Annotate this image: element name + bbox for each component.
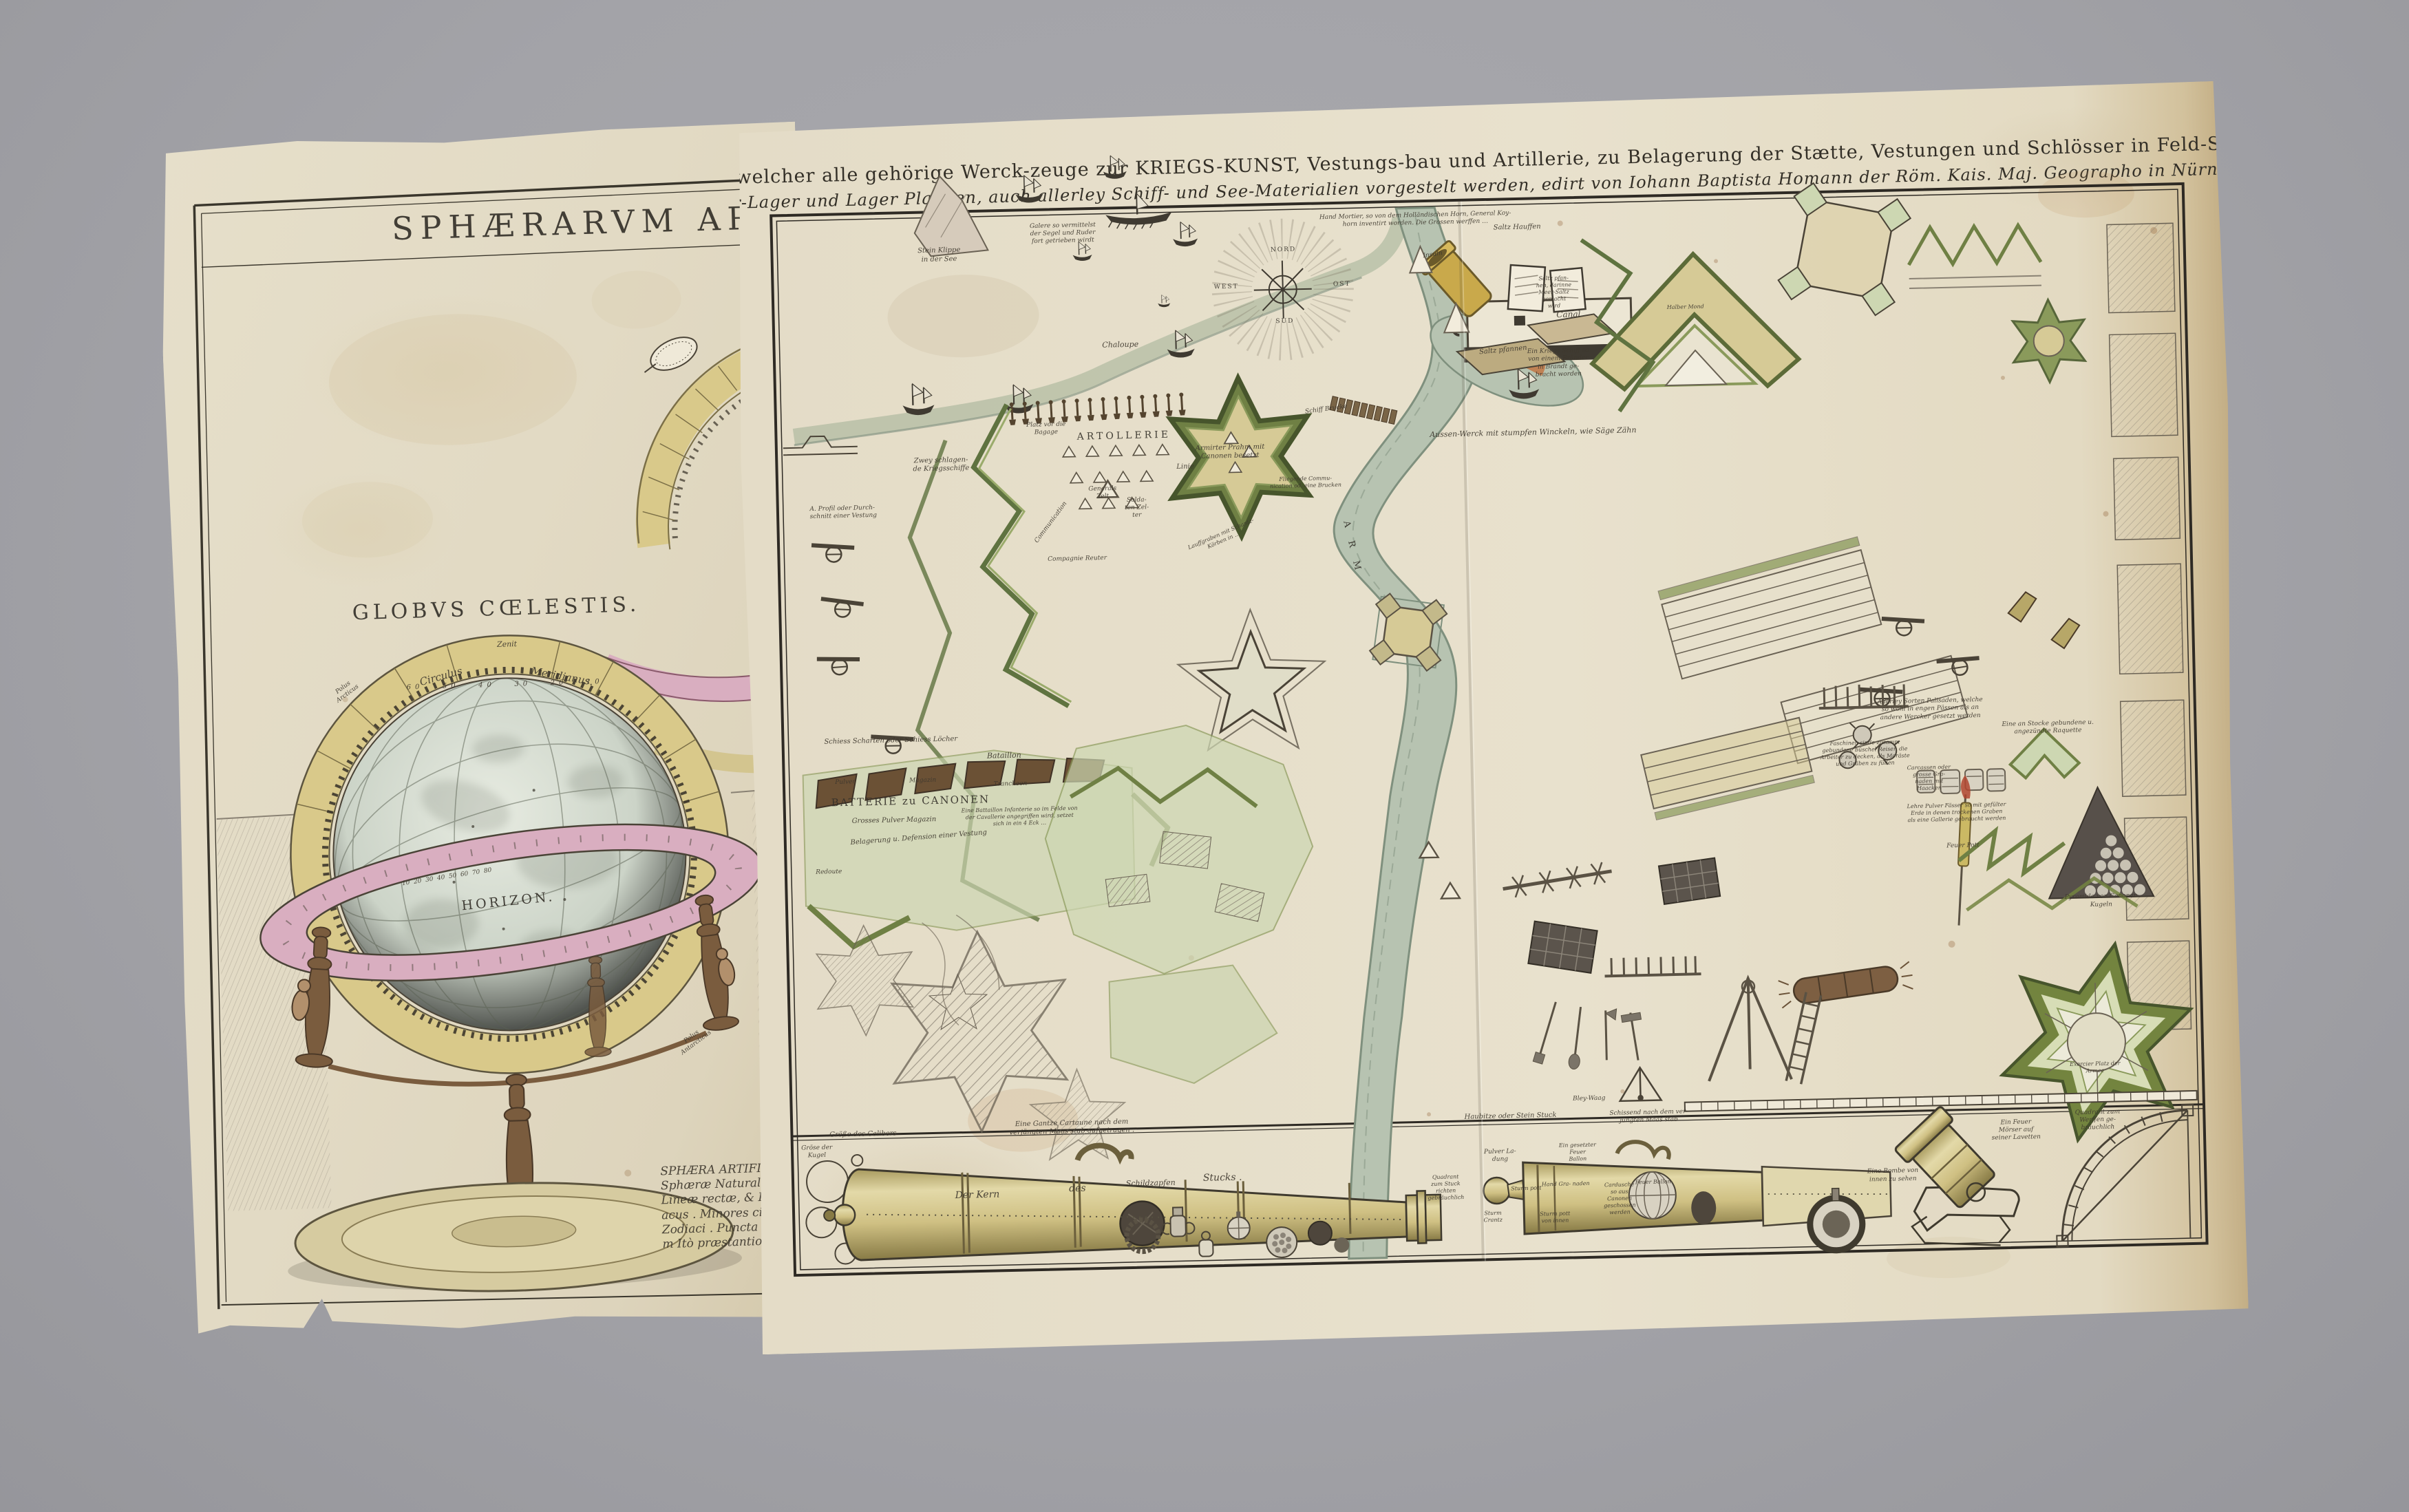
left-map-sheet: SPHÆRARVM ARTIFGLOBVS CŒLESTIS.ZenitCirc… <box>156 122 830 1337</box>
gin-derrick <box>1707 977 1792 1081</box>
globe-engraving <box>156 122 830 1337</box>
tools <box>1531 999 1648 1071</box>
pontoon-bridge <box>1330 396 1397 425</box>
star-redoubt <box>1169 376 1310 537</box>
plumb-level <box>1620 1067 1662 1101</box>
fascine-bundle <box>1777 961 1915 1008</box>
war-art-engraving <box>732 81 2249 1355</box>
photo-scene: SPHÆRARVM ARTIFGLOBVS CŒLESTIS.ZenitCirc… <box>0 0 2409 1512</box>
barracks-rows <box>1636 532 2083 820</box>
right-map-sheet: TAFEL in welcher alle gehörige Werck-zeu… <box>732 81 2249 1355</box>
ladder <box>1786 992 1821 1085</box>
field-mortar <box>1893 1104 2020 1247</box>
gabions <box>1917 769 2006 794</box>
cremaillere-line <box>1958 829 2065 874</box>
compass-rose <box>1231 237 1335 341</box>
gun-platforms <box>1526 858 1722 975</box>
globe-base <box>286 1177 743 1298</box>
galley <box>1105 193 1172 230</box>
